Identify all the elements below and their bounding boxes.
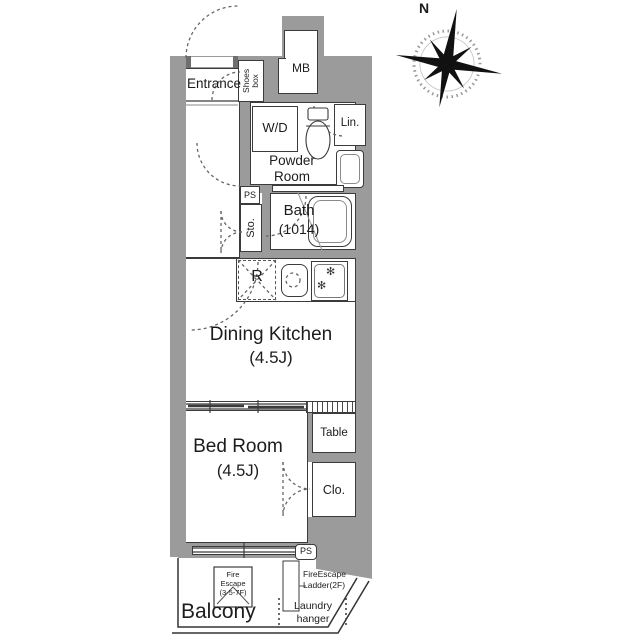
entrance-door-opening (190, 57, 234, 67)
wall-left (170, 56, 186, 557)
bath-window (272, 185, 344, 192)
wall-table-closet-divider (306, 452, 372, 462)
entrance-door-jamb-left (186, 56, 191, 68)
linen-label: Lin. (334, 117, 366, 130)
transom-hatch (306, 401, 356, 413)
closet-label: Clo. (312, 483, 356, 497)
refrigerator-label: R (238, 268, 276, 286)
kitchen-sink (281, 264, 308, 297)
laundry-hanger-label: Laundry hanger (284, 600, 342, 626)
bed-room-label: Bed Room (186, 436, 290, 457)
fire-escape-hatch-label: Fire Escape (3-5-7F) (214, 570, 252, 597)
powder-room-label: Powder Room (250, 153, 334, 184)
balcony-window (192, 546, 296, 555)
dining-kitchen-label: Dining Kitchen (186, 324, 356, 345)
ps-top-label: PS (240, 190, 260, 200)
bath-label: Bath (266, 203, 332, 220)
balcony-label: Balcony (181, 600, 256, 624)
shoes-box-label: Shoes box (238, 60, 264, 102)
storage-label: Sto. (240, 204, 262, 252)
floor-plan: ✻ ✻ (0, 0, 640, 639)
mb-label: MB (284, 62, 318, 75)
dining-kitchen-size-label: (4.5J) (186, 348, 356, 367)
entrance-hall-area (186, 68, 240, 258)
compass-north-label: N (419, 1, 429, 17)
fire-escape-ladder-label: FireEscape Ladder(2F) (303, 569, 346, 591)
burner-icon: ✻ (317, 280, 326, 292)
table-label: Table (312, 427, 356, 440)
wall-closet-bottom (306, 517, 372, 545)
bath-size-label: (1014) (262, 222, 336, 238)
washbasin-bowl (340, 154, 360, 184)
ps-bottom-label: PS (295, 546, 317, 556)
burner-icon: ✻ (326, 266, 335, 278)
entrance-label: Entrance (187, 76, 241, 91)
wd-label: W/D (252, 121, 298, 136)
bed-room-size-label: (4.5J) (186, 462, 290, 480)
compass-rose-icon (390, 2, 510, 122)
